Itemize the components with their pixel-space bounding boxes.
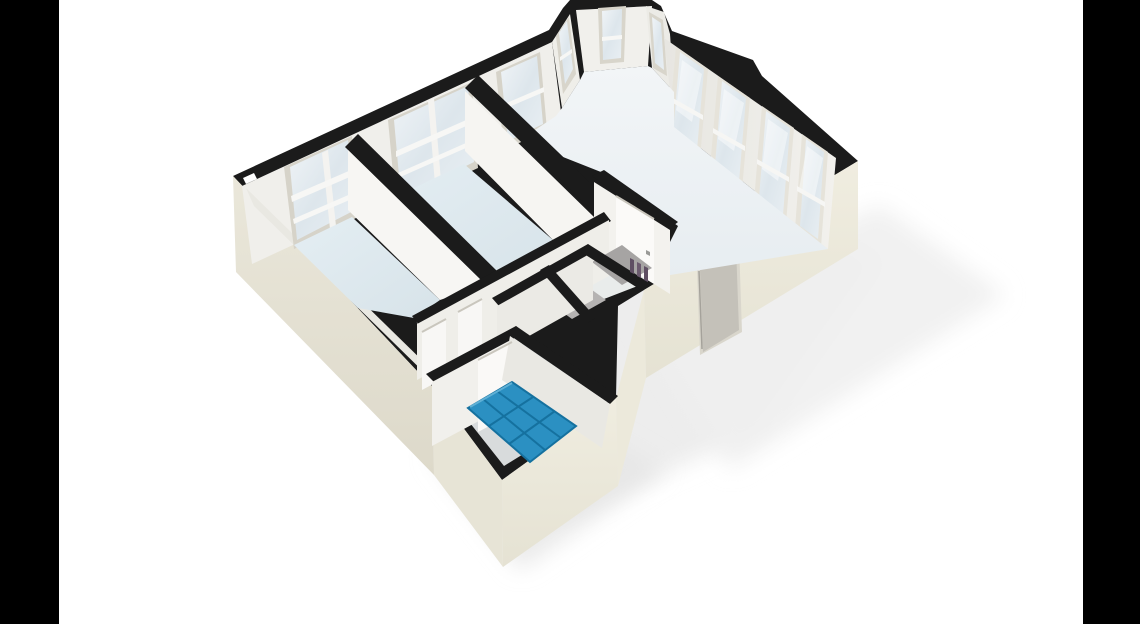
radiator-mark-2 [637,262,641,278]
radiator-mark-3 [644,266,648,282]
letterbox-right [1083,0,1140,624]
radiator-mark-1 [630,258,634,274]
bay-window-center-glass [602,9,622,60]
letterbox-left [0,0,59,624]
floorplan-viewer: 3D isometric floor plan rendering of an … [0,0,1140,624]
floorplan-image [0,0,1140,624]
